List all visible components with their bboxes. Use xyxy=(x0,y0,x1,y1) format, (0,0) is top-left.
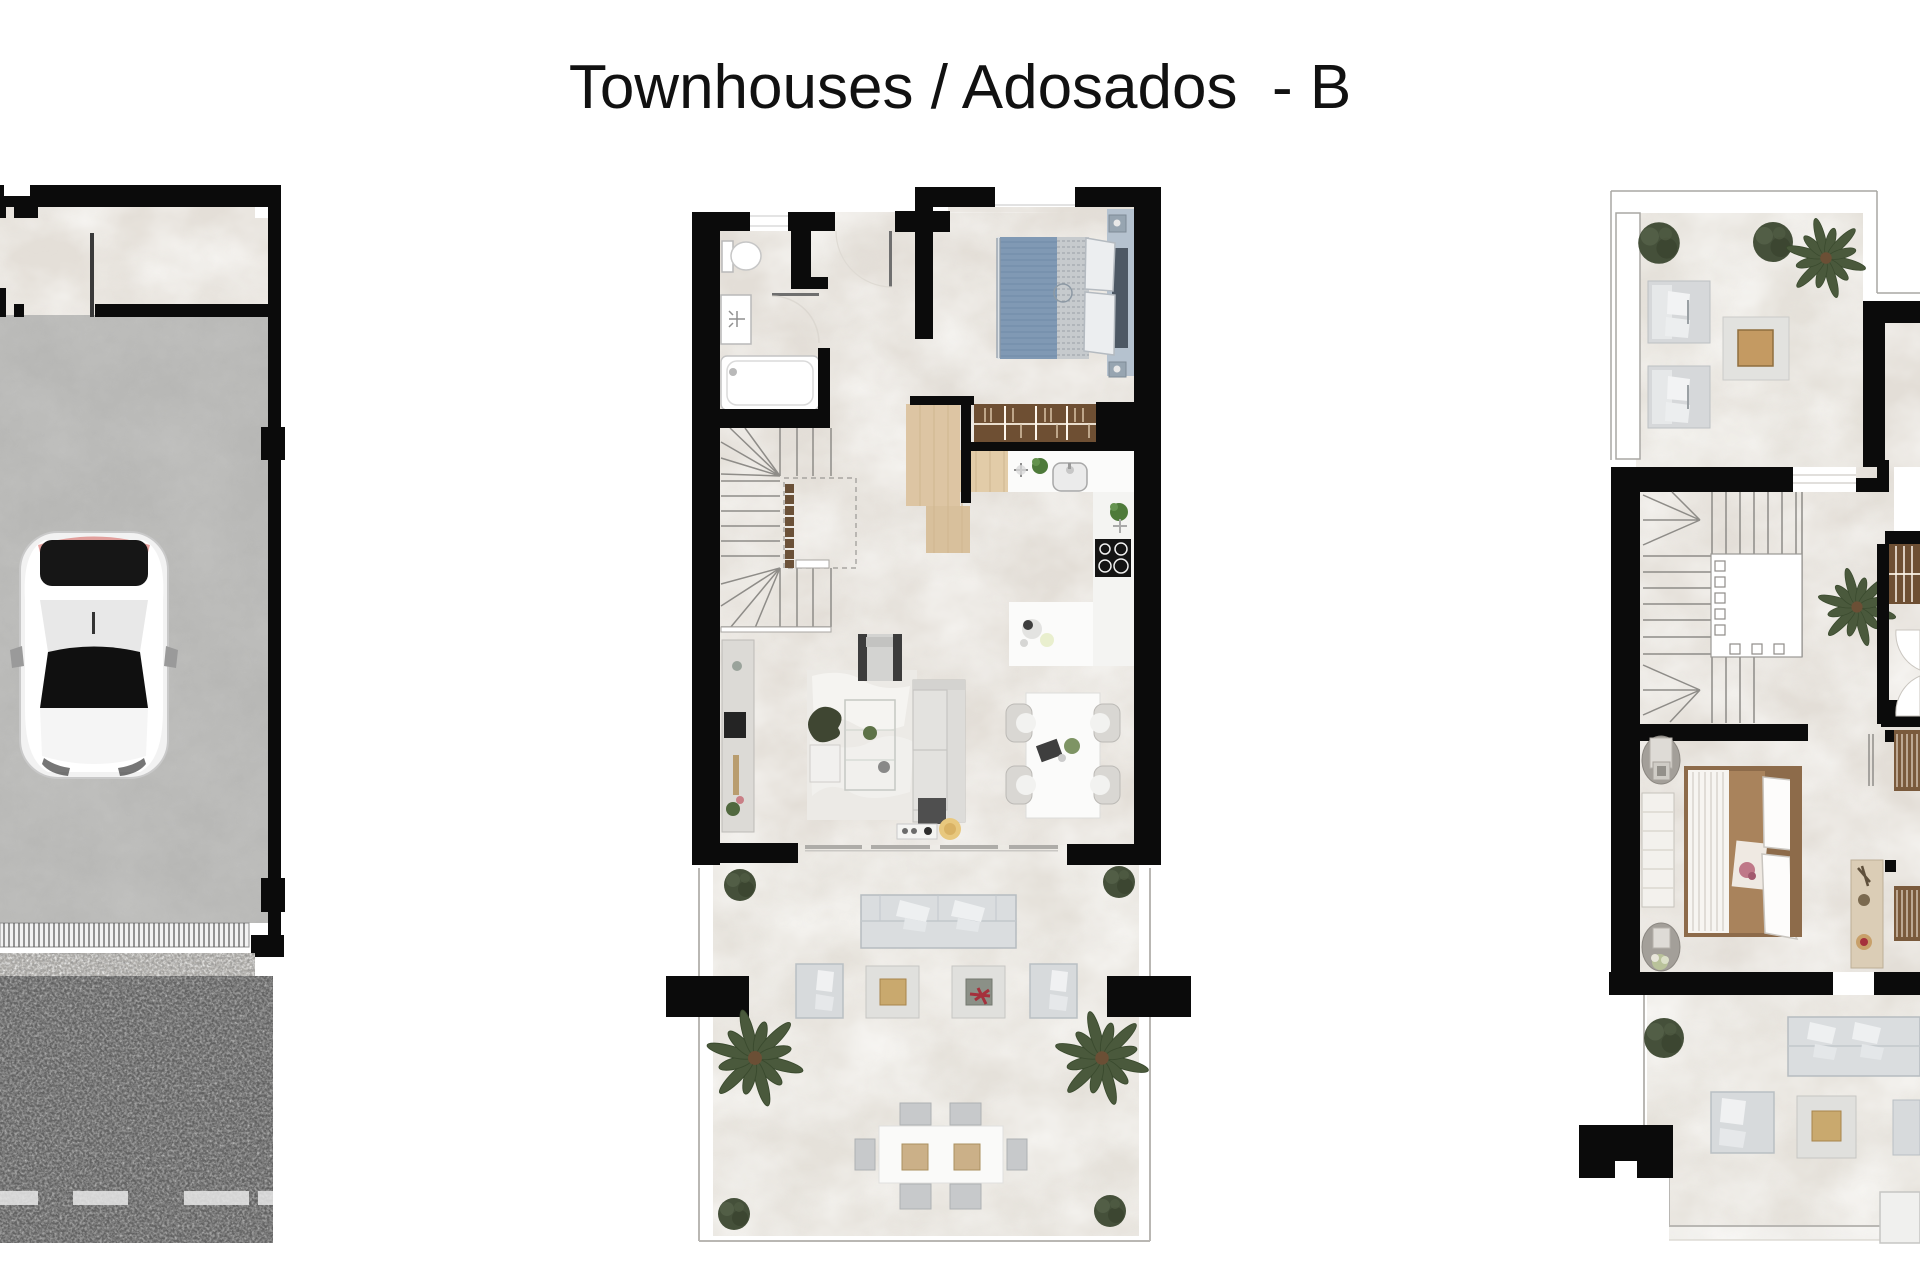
svg-text:Townhouses / Adosados - B: Townhouses / Adosados - B xyxy=(569,53,1351,122)
